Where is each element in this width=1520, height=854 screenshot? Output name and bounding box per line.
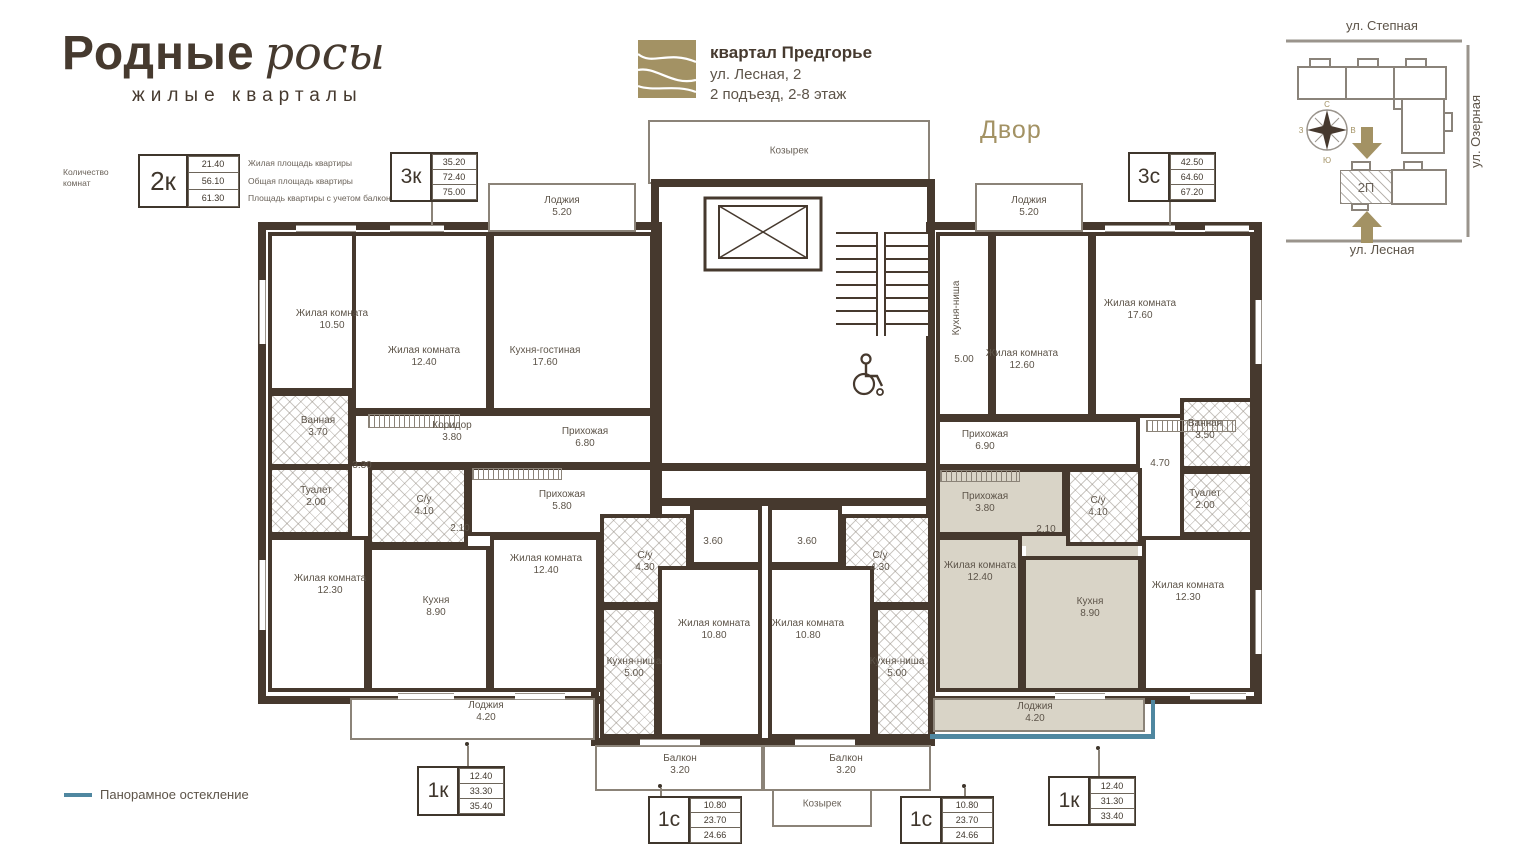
room-living-1230-left xyxy=(268,536,368,692)
area-living: 10.80 xyxy=(690,798,741,814)
window xyxy=(398,693,454,700)
apartment-tag-3k[interactable]: 3к 35.20 72.40 75.00 xyxy=(390,152,478,202)
brand-subtitle: жилые кварталы xyxy=(132,85,442,107)
street-top-label: ул. Степная xyxy=(1282,18,1482,33)
room-bath-right xyxy=(1180,398,1254,470)
legend-value-balcony: 61.30 xyxy=(188,189,239,207)
glazing-line-side xyxy=(1151,700,1155,739)
apartment-code: 3с xyxy=(1130,154,1170,200)
tag-leader xyxy=(467,746,469,766)
apartment-tag-1k-right[interactable]: 1к 12.40 31.30 33.40 xyxy=(1048,776,1136,826)
tag-leader xyxy=(431,202,433,226)
glazing-legend-line xyxy=(64,793,92,797)
quarter-logo xyxy=(638,40,696,98)
window xyxy=(640,739,700,746)
legend-rooms-count: Количество комнат xyxy=(63,167,127,188)
area-living: 35.20 xyxy=(432,154,477,170)
area-with-balcony: 35.40 xyxy=(459,798,504,814)
area-living: 12.40 xyxy=(459,768,504,784)
area-total: 72.40 xyxy=(432,169,477,185)
wardrobe-stripe xyxy=(368,414,460,428)
tag-leader xyxy=(1169,202,1171,226)
room-living-1230-right xyxy=(1142,536,1254,692)
svg-text:Ю: Ю xyxy=(1323,156,1331,165)
project-entrance: 2 подъезд, 2-8 этаж xyxy=(710,85,872,105)
room-living-1240-3k xyxy=(352,232,490,412)
window xyxy=(1255,590,1262,654)
balcony-left xyxy=(595,745,763,791)
window xyxy=(1105,225,1175,232)
wheelchair-icon xyxy=(846,352,888,398)
window xyxy=(390,225,444,232)
window xyxy=(515,693,565,700)
loggia-bottom-left xyxy=(350,698,595,740)
wardrobe-stripe xyxy=(472,468,562,480)
tag-leader xyxy=(964,788,966,796)
window xyxy=(259,560,266,630)
area-total: 31.30 xyxy=(1090,793,1135,809)
balcony-right xyxy=(763,745,931,791)
area-living: 42.50 xyxy=(1170,154,1215,170)
area-with-balcony: 33.40 xyxy=(1090,808,1135,824)
area-total: 23.70 xyxy=(690,812,741,828)
svg-text:С: С xyxy=(1324,100,1330,109)
area-total: 23.70 xyxy=(942,812,993,828)
room-living-studio-right xyxy=(768,566,874,738)
compass-icon: С В Ю З xyxy=(1299,100,1356,165)
loggia-top-right xyxy=(975,183,1083,232)
legend-value-total: 56.10 xyxy=(188,172,239,190)
wardrobe-stripe xyxy=(1146,420,1236,432)
project-address: ул. Лесная, 2 xyxy=(710,65,872,85)
room-hall-studio-left xyxy=(690,506,762,566)
street-bottom-label: ул. Лесная xyxy=(1282,242,1482,257)
room-living-1760 xyxy=(1092,232,1254,418)
loggia-top-left xyxy=(488,183,636,232)
apartment-code: 1к xyxy=(1050,778,1090,824)
room-kitchen-living xyxy=(490,232,654,412)
room-bath-left xyxy=(268,392,352,468)
brand-title: Родные xyxy=(62,27,255,80)
room-kitchen-left xyxy=(368,546,490,692)
room-su-left xyxy=(368,466,468,546)
tag-leader xyxy=(660,788,662,796)
svg-text:В: В xyxy=(1350,126,1355,135)
canopy-top-label: Козырек xyxy=(770,146,809,157)
window xyxy=(1190,693,1246,700)
glazing-legend-label: Панорамное остекление xyxy=(100,787,249,802)
project-name: квартал Предгорье xyxy=(710,42,872,65)
room-niche-studio-left xyxy=(600,606,658,738)
wardrobe-stripe xyxy=(940,470,1020,482)
logo-waves-icon xyxy=(638,40,696,98)
project-info: квартал Предгорье ул. Лесная, 2 2 подъез… xyxy=(710,42,872,105)
room-living-1240-1k-left xyxy=(490,536,600,692)
legend-value-living: 21.40 xyxy=(188,156,239,174)
floorplan-page: Родныеросы жилые кварталы квартал Предго… xyxy=(0,0,1520,854)
canopy-bottom-label: Козырек xyxy=(803,799,842,810)
tag-leader xyxy=(1098,750,1100,776)
window xyxy=(1255,300,1262,364)
glazing-line-bottom xyxy=(930,734,1155,739)
area-with-balcony: 24.66 xyxy=(690,827,741,843)
legend-tag: 2к 21.40 56.10 61.30 xyxy=(138,154,240,208)
room-wc-right xyxy=(1180,470,1254,536)
apartment-code: 1с xyxy=(650,798,690,842)
street-right-label: ул. Озерная xyxy=(1468,95,1483,168)
room-hall-studio-right xyxy=(768,506,842,566)
apartment-code: 3к xyxy=(392,154,432,200)
room-wc-left xyxy=(268,466,352,536)
room-su-right xyxy=(1066,468,1142,546)
apartment-code: 1с xyxy=(902,798,942,842)
apartment-tag-1k-left[interactable]: 1к 12.40 33.30 35.40 xyxy=(417,766,505,816)
room-niche-3s xyxy=(936,232,992,418)
area-total: 64.60 xyxy=(1170,169,1215,185)
brand-logo: Родныеросы жилые кварталы xyxy=(62,26,442,107)
area-with-balcony: 75.00 xyxy=(432,184,477,200)
window xyxy=(1055,693,1105,700)
legend-code: 2к xyxy=(140,156,188,206)
window xyxy=(259,280,266,344)
room-hall-690 xyxy=(936,418,1140,468)
area-with-balcony: 67.20 xyxy=(1170,184,1215,200)
room-living-1260 xyxy=(992,232,1092,418)
window xyxy=(1205,225,1249,232)
svg-text:З: З xyxy=(1299,126,1304,135)
building-block-2p[interactable]: 2П xyxy=(1340,170,1392,204)
area-with-balcony: 24.66 xyxy=(942,827,993,843)
yard-label: Двор xyxy=(980,116,1042,145)
room-kitchen-right[interactable] xyxy=(1022,556,1142,692)
brand-title-script: росы xyxy=(265,26,385,80)
elevator-icon xyxy=(703,196,823,272)
room-living-studio-left xyxy=(658,566,762,738)
stairs-rail xyxy=(876,232,886,336)
room-living-1240-1k-right[interactable] xyxy=(936,536,1022,692)
area-total: 33.30 xyxy=(459,783,504,799)
loggia-bottom-right-highlighted[interactable] xyxy=(933,698,1145,732)
apartment-tag-1s-left[interactable]: 1с 10.80 23.70 24.66 xyxy=(648,796,742,844)
room-niche-studio-right xyxy=(874,606,932,738)
legend-desc-balcony: Площадь квартиры с учетом балкона xyxy=(248,194,398,204)
site-map: С В Ю З xyxy=(1282,15,1482,265)
apartment-tag-3s[interactable]: 3с 42.50 64.60 67.20 xyxy=(1128,152,1216,202)
apartment-code: 1к xyxy=(419,768,459,814)
apartment-tag-1s-right[interactable]: 1с 10.80 23.70 24.66 xyxy=(900,796,994,844)
area-living: 10.80 xyxy=(942,798,993,814)
window xyxy=(296,225,356,232)
area-living: 12.40 xyxy=(1090,778,1135,794)
window xyxy=(795,739,855,746)
